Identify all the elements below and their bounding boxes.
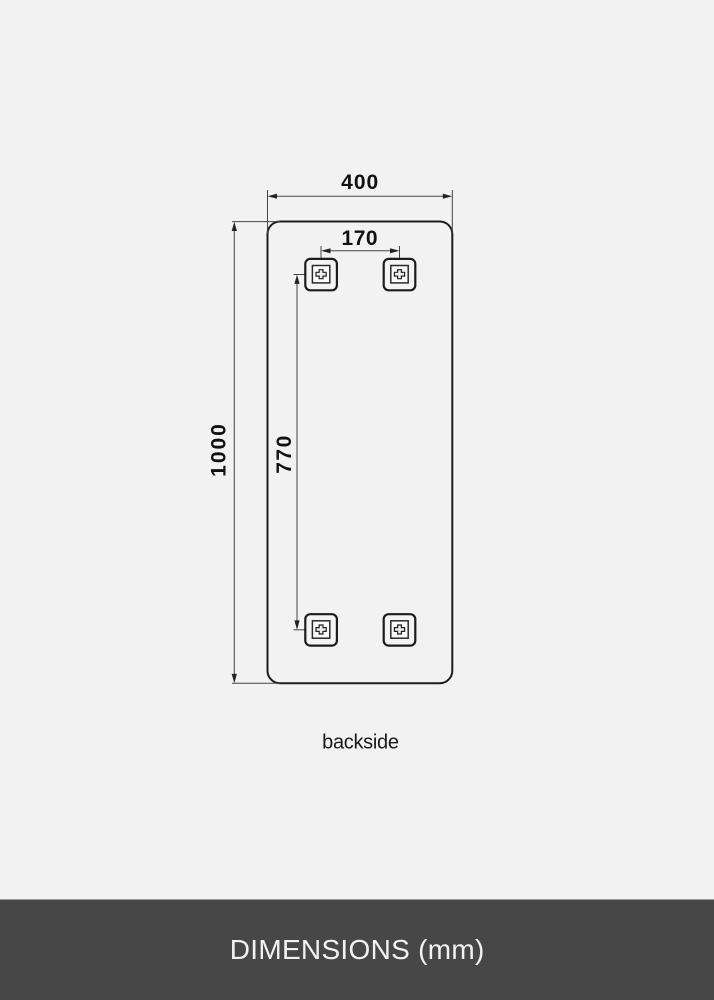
svg-text:1000: 1000 <box>208 422 231 477</box>
svg-text:170: 170 <box>342 227 379 250</box>
svg-text:400: 400 <box>341 171 379 194</box>
svg-text:770: 770 <box>273 434 296 474</box>
svg-text:DIMENSIONS (mm): DIMENSIONS (mm) <box>230 934 485 965</box>
svg-text:backside: backside <box>322 731 399 753</box>
